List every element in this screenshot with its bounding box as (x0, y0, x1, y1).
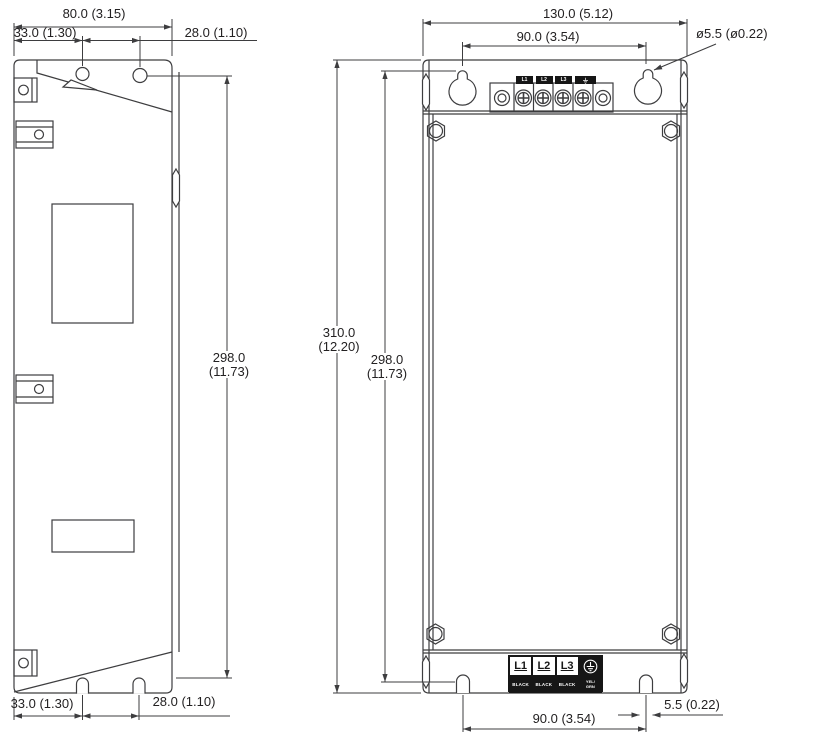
ground-icon (582, 77, 589, 84)
dim-side-mount-height: 298.0 (11.73) (198, 351, 260, 378)
side-panel-cutout-large (52, 204, 133, 323)
front-rail-latch-br (681, 654, 688, 688)
bottom-terminal-l3: L3 (556, 656, 579, 676)
top-terminal-label-ground (575, 76, 596, 84)
bottom-terminal-label-block: L1 L2 L3 BLACK BLACK BLACK YEL/ GRN (508, 655, 603, 692)
dim-side-bottom-offset: 33.0 (1.30) (2, 697, 82, 711)
dim-front-hole-pitch-bottom: 90.0 (3.54) (530, 712, 598, 726)
front-view (423, 60, 688, 693)
dim-front-mount-height: 298.0 (11.73) (356, 353, 418, 380)
dim-side-bottom-pitch: 28.0 (1.10) (142, 695, 226, 709)
side-bracket-4 (14, 650, 37, 676)
bottom-ground-wire-color: YEL/ GRN (579, 676, 602, 693)
side-bottom-notch-2 (133, 678, 145, 694)
dim-hole-diameter: ø5.5 (ø0.22) (696, 27, 800, 41)
bottom-wire-color-3: BLACK (556, 676, 579, 693)
front-bottom-separator (423, 650, 687, 653)
hex-nut-icon (428, 121, 445, 141)
hex-nut-icon (663, 121, 680, 141)
dim-front-hole-pitch-top: 90.0 (3.54) (514, 30, 582, 44)
keyhole-slot-right (635, 70, 662, 104)
hex-nut-icon (663, 624, 680, 644)
front-rail-latch-bl (423, 656, 430, 688)
dim-bottom-slot-width: 5.5 (0.22) (660, 698, 724, 712)
side-bracket-2 (16, 121, 53, 148)
dim-front-total-height: 310.0 (12.20) (308, 326, 370, 353)
side-bracket-3 (16, 375, 53, 403)
front-rail-latch-tl (423, 74, 430, 110)
bottom-wire-color-1: BLACK (509, 676, 532, 693)
bottom-wire-color-2: BLACK (532, 676, 555, 693)
top-terminal-label-l1: L1 (516, 76, 533, 84)
terminal-ring-icon (596, 91, 611, 106)
terminal-screw-icon (575, 90, 591, 106)
side-panel-cutout-small (52, 520, 134, 552)
side-bottom-notch-1 (77, 678, 89, 694)
terminal-screw-icon (516, 90, 532, 106)
top-terminal-label-l2: L2 (536, 76, 553, 84)
terminal-screw-icon (535, 90, 551, 106)
front-body-outline (423, 60, 687, 693)
dim-side-width: 80.0 (3.15) (50, 7, 138, 21)
hex-nut-icon (427, 624, 444, 644)
bottom-slot-right (640, 675, 653, 693)
front-rail-lines (429, 60, 681, 693)
side-bracket-1 (14, 78, 37, 102)
side-view (14, 60, 180, 694)
dim-side-hole-pitch: 28.0 (1.10) (176, 26, 256, 40)
side-mount-hole-1 (76, 68, 89, 81)
top-terminal-strip (490, 83, 613, 112)
side-body-outline (14, 60, 172, 693)
side-top-step-and-flange (37, 60, 172, 112)
dim-side-hole-offset: 33.0 (1.30) (6, 26, 84, 40)
bottom-slot-left (457, 675, 470, 693)
top-terminal-label-l3: L3 (555, 76, 572, 84)
terminal-ring-icon (495, 91, 510, 106)
bottom-terminal-l2: L2 (532, 656, 555, 676)
terminal-screw-icon (555, 90, 571, 106)
front-rail-latch-tr (681, 72, 688, 108)
ground-icon (583, 659, 598, 674)
keyhole-slot-left (449, 71, 476, 105)
dim-front-width: 130.0 (5.12) (540, 7, 616, 21)
bottom-terminal-ground (579, 656, 602, 676)
side-edge-latch (173, 169, 180, 207)
side-bottom-flange (14, 652, 172, 692)
bottom-terminal-l1: L1 (509, 656, 532, 676)
front-inner-panel-lines (433, 114, 677, 650)
dimension-drawing: 80.0 (3.15) 33.0 (1.30) 28.0 (1.10) 298.… (0, 0, 816, 754)
dimension-arrowheads (14, 20, 687, 731)
side-mount-hole-2 (133, 69, 147, 83)
